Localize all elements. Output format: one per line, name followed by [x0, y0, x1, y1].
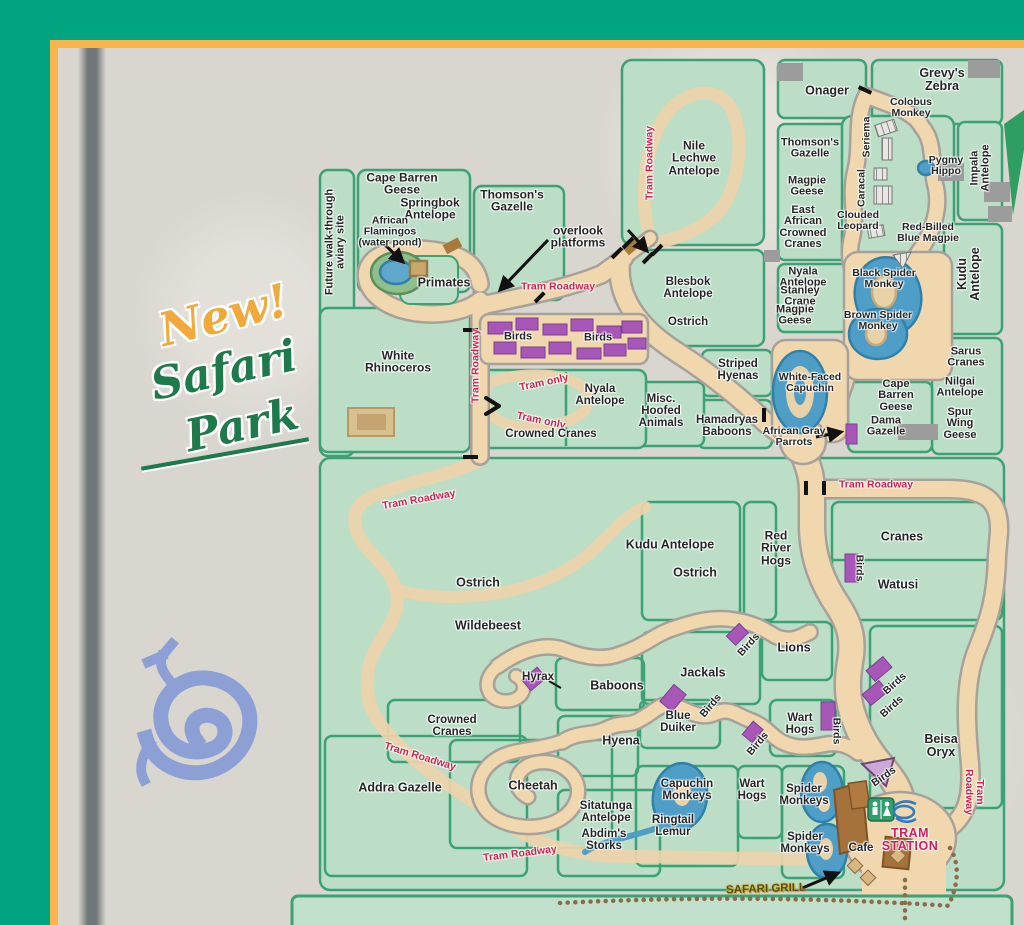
park-map [0, 0, 1024, 925]
brochure-page: New! Safari Park Future walk-through avi… [0, 0, 1024, 925]
restroom-icon [868, 798, 894, 821]
petroglyph-icon [141, 644, 250, 780]
